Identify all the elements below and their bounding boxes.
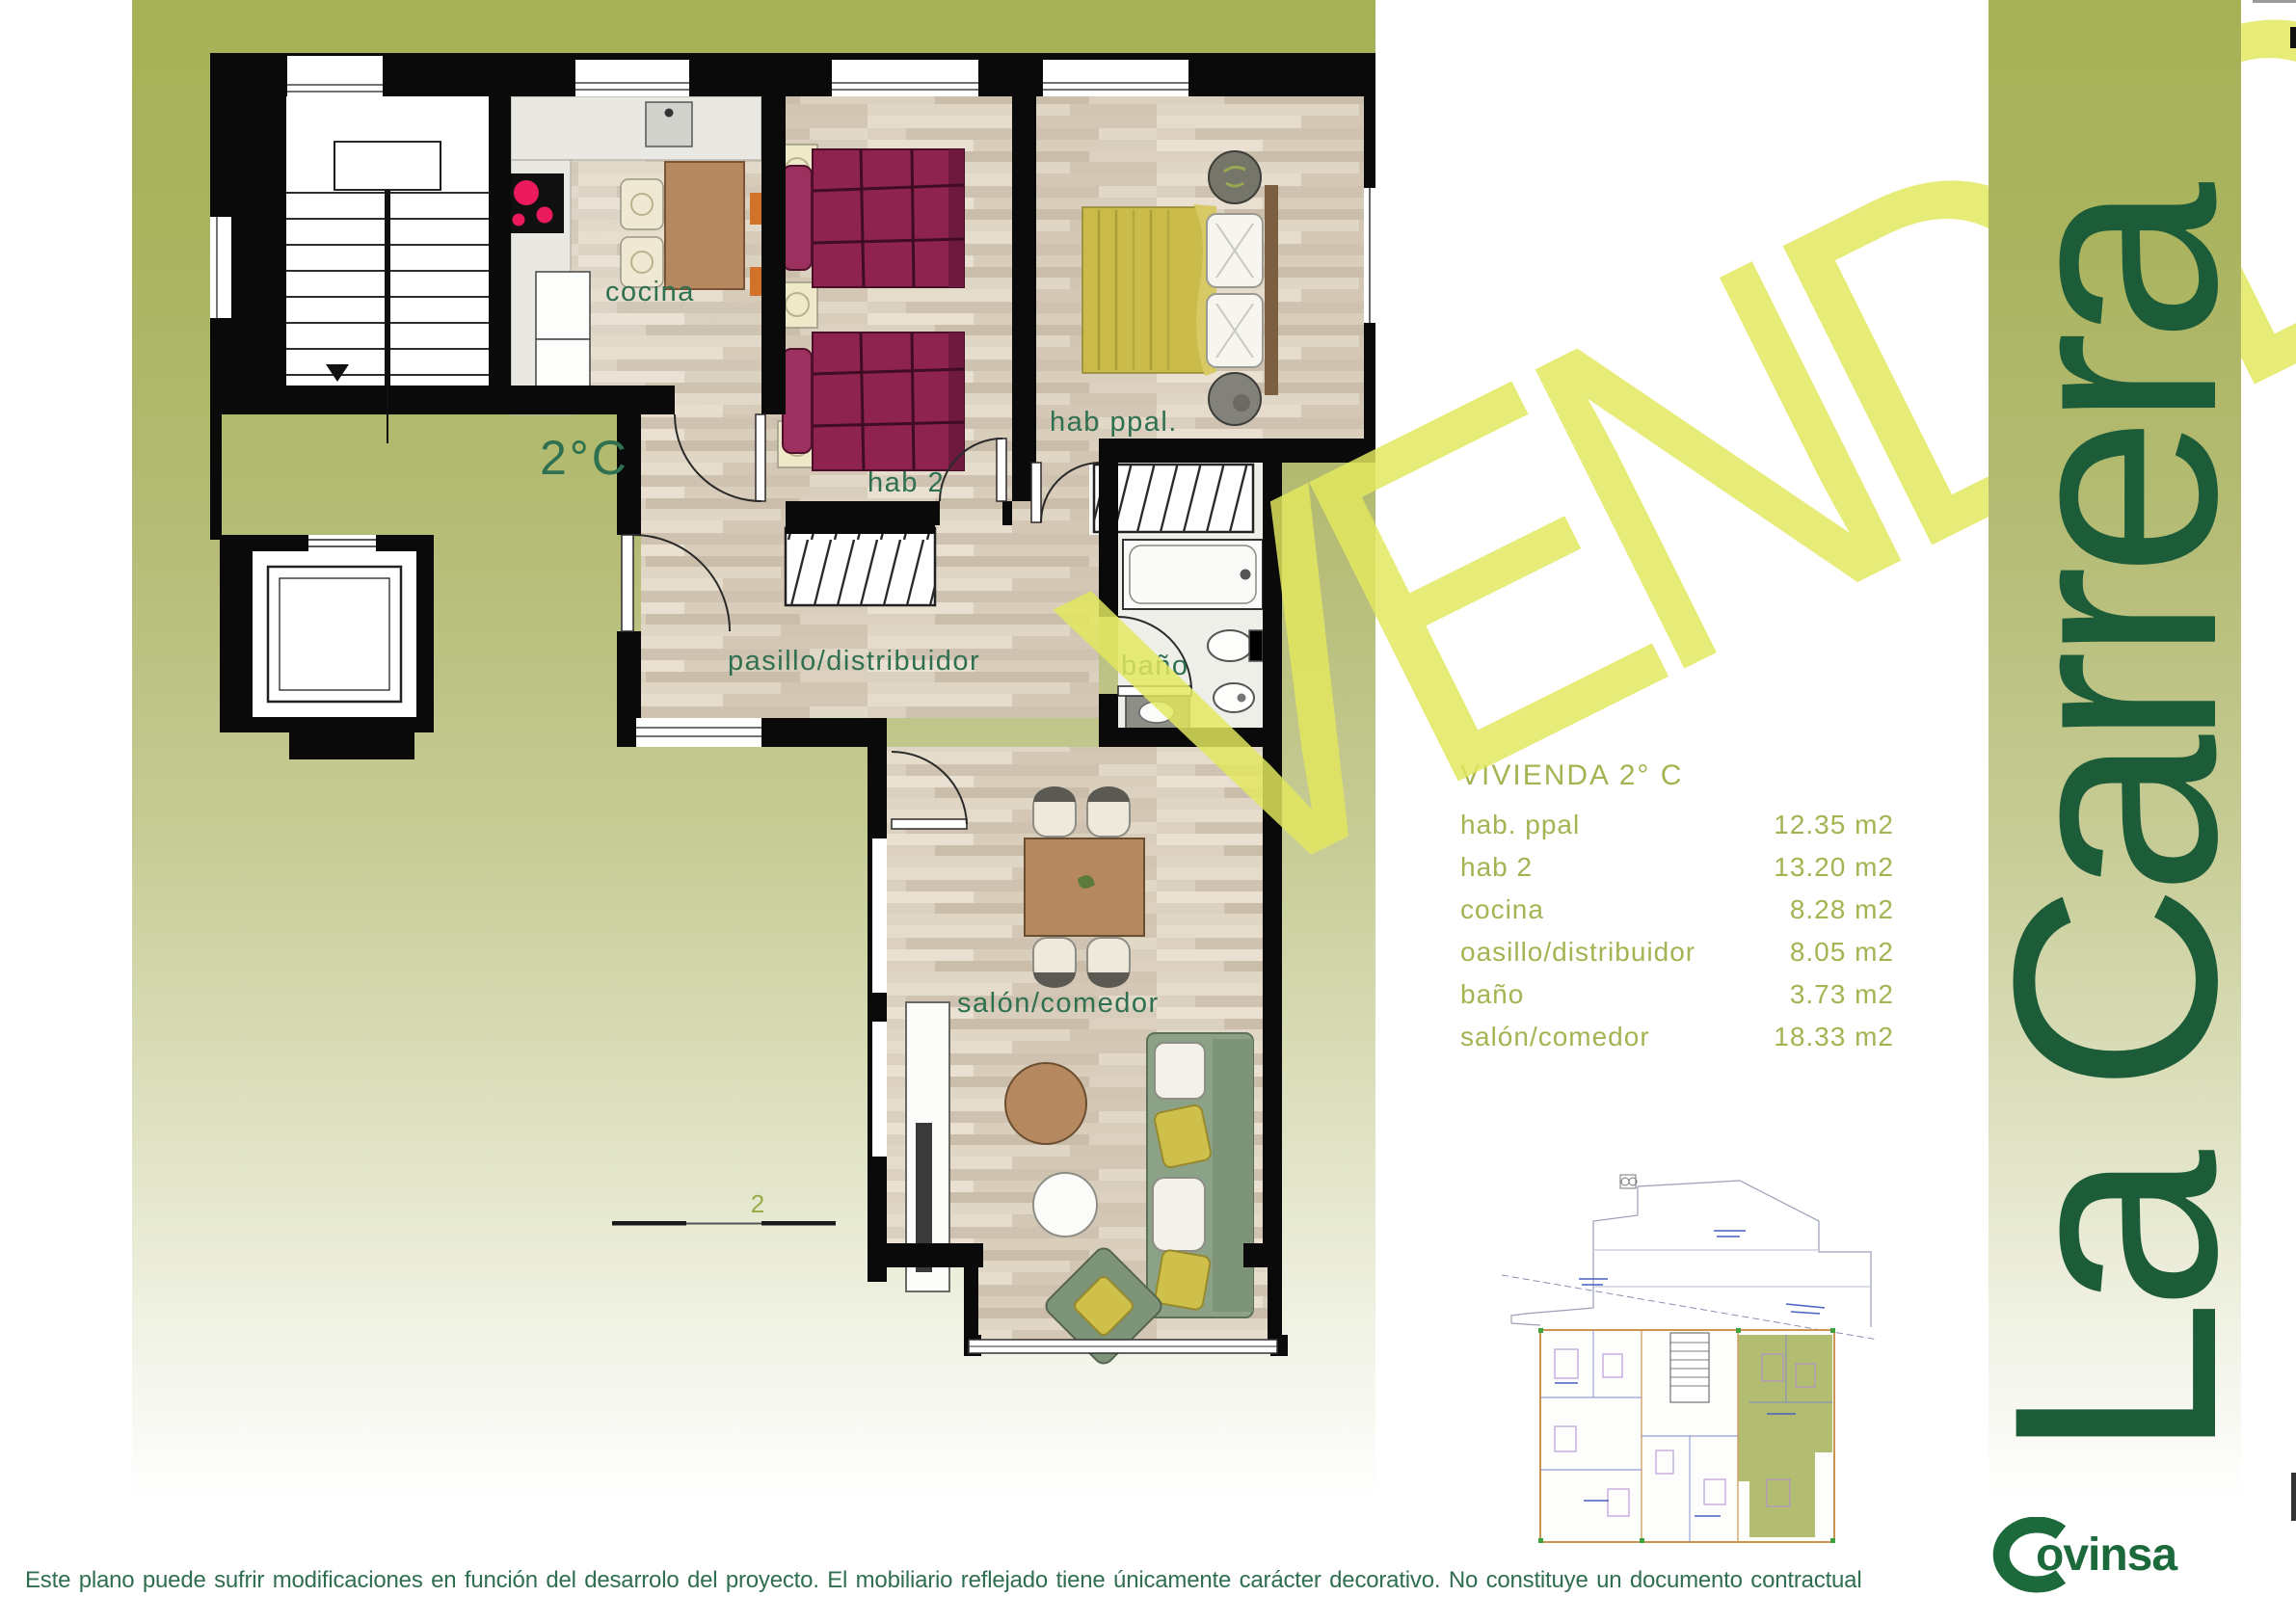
unit-label: 2°C — [540, 431, 629, 485]
room-name: baño — [1460, 973, 1524, 1016]
room-name: hab 2 — [1460, 846, 1533, 889]
table-row: hab. ppal 12.35 m2 — [1460, 804, 1894, 846]
table-row: cocina 8.28 m2 — [1460, 889, 1894, 931]
covinsa-logo-text: ovinsa — [2036, 1529, 2176, 1582]
disclaimer-text: Este plano puede sufrir modificaciones e… — [25, 1567, 1953, 1594]
room-area: 13.20 m2 — [1774, 846, 1894, 889]
area-table-title: VIVIENDA 2° C — [1460, 759, 1894, 792]
kitchen-label: cocina — [605, 277, 695, 307]
room-area: 8.05 m2 — [1790, 931, 1894, 973]
table-row: oasillo/distribuidor 8.05 m2 — [1460, 931, 1894, 973]
area-table: VIVIENDA 2° C hab. ppal 12.35 m2 hab 2 1… — [1460, 759, 1894, 1058]
room-area: 3.73 m2 — [1790, 973, 1894, 1016]
scale-label: 2 — [751, 1189, 764, 1218]
room-name: salón/comedor — [1460, 1016, 1650, 1058]
hall-label: pasillo/distribuidor — [728, 646, 980, 677]
right-edge-tick-top — [2290, 27, 2296, 48]
table-row: hab 2 13.20 m2 — [1460, 846, 1894, 889]
bedroom2-label: hab 2 — [868, 467, 945, 498]
scale-bar: 2 — [612, 1189, 836, 1226]
bathroom-label: baño — [1121, 651, 1189, 681]
top-edge-hairline — [2253, 0, 2296, 3]
room-name: oasillo/distribuidor — [1460, 931, 1695, 973]
room-name: cocina — [1460, 889, 1544, 931]
development-name-vertical: La Carrera — [1989, 178, 2241, 1460]
room-area: 18.33 m2 — [1774, 1016, 1894, 1058]
floorplan-drawing: cocina hab 2 hab ppal. pasillo/distribui… — [132, 0, 1375, 1503]
site-plan-thumbnail — [1497, 1161, 1882, 1556]
room-name: hab. ppal — [1460, 804, 1580, 846]
right-edge-tick-bottom — [2291, 1473, 2296, 1521]
elevator — [253, 535, 416, 717]
master-bedroom-label: hab ppal. — [1050, 407, 1178, 438]
table-row: salón/comedor 18.33 m2 — [1460, 1016, 1894, 1058]
covinsa-logo: ovinsa — [1991, 1517, 2232, 1598]
room-area: 12.35 m2 — [1774, 804, 1894, 846]
table-row: baño 3.73 m2 — [1460, 973, 1894, 1016]
room-area: 8.28 m2 — [1790, 889, 1894, 931]
living-room-label: salón/comedor — [957, 988, 1160, 1019]
